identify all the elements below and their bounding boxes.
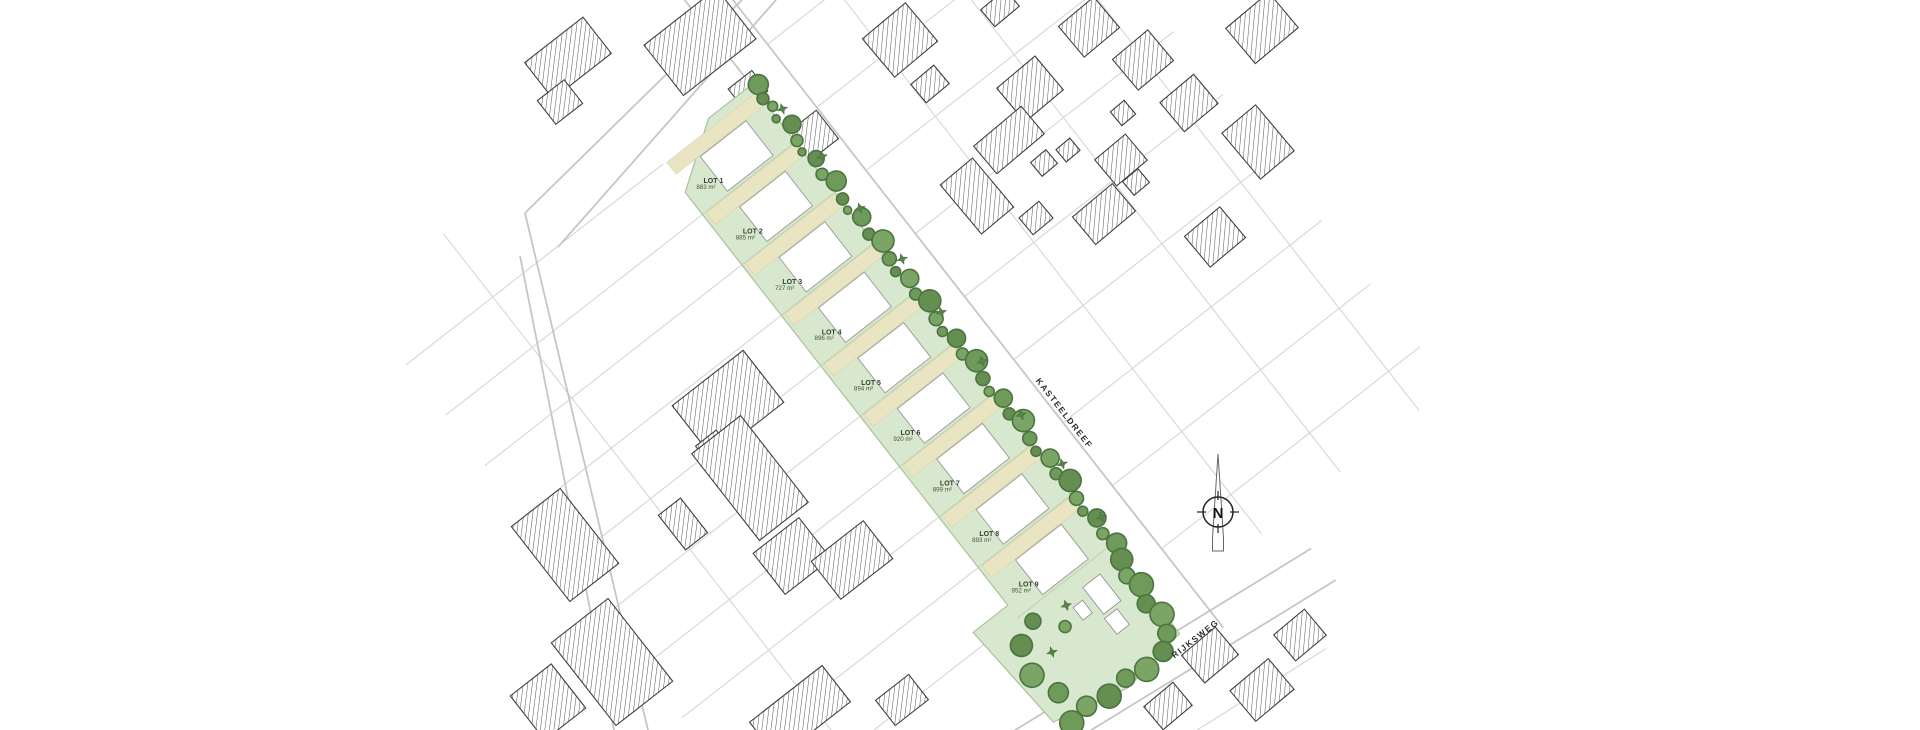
building-hatch-fill bbox=[911, 65, 949, 103]
building-hatch-fill bbox=[1073, 183, 1136, 244]
building-hatch-fill bbox=[876, 674, 929, 725]
hatched-building bbox=[811, 521, 893, 599]
north-arrow: N bbox=[1197, 454, 1239, 551]
parcel-line bbox=[1162, 347, 1420, 549]
parcel-line bbox=[446, 214, 703, 415]
site-plan-map: LOT 1883 m²LOT 2885 m²LOT 3727 m²LOT 489… bbox=[0, 0, 1920, 730]
building-hatch-fill bbox=[750, 666, 851, 730]
lot-area-label: 727 m² bbox=[775, 285, 794, 292]
hatched-building bbox=[981, 0, 1020, 27]
building-hatch-fill bbox=[1031, 150, 1058, 177]
lot-area-label: 896 m² bbox=[815, 335, 834, 342]
building-hatch-fill bbox=[1110, 100, 1135, 125]
building-hatch-fill bbox=[1226, 0, 1298, 64]
lot-area-label: 893 m² bbox=[972, 537, 991, 544]
north-label: N bbox=[1213, 505, 1224, 522]
hatched-building bbox=[1144, 682, 1192, 729]
lot-area-label: 952 m² bbox=[1012, 587, 1031, 594]
hatched-building bbox=[911, 65, 949, 103]
building-hatch-fill bbox=[811, 521, 893, 599]
street-label-main: KASTEELDREEF bbox=[1034, 376, 1095, 450]
building-hatch-fill bbox=[1144, 682, 1192, 729]
building-hatch-fill bbox=[1059, 0, 1120, 57]
hatched-building bbox=[658, 498, 707, 550]
lot-area-label: 885 m² bbox=[736, 234, 755, 241]
lot-area-label: 920 m² bbox=[893, 436, 912, 443]
bush-icon bbox=[895, 252, 909, 266]
building-hatch-fill bbox=[1160, 74, 1218, 131]
building-hatch-fill bbox=[1056, 138, 1080, 162]
hatched-building bbox=[750, 666, 851, 730]
building-hatch-fill bbox=[510, 664, 585, 730]
hatched-building bbox=[511, 488, 618, 601]
hatched-building bbox=[1185, 207, 1246, 267]
building-hatch-fill bbox=[997, 56, 1064, 122]
hatched-building bbox=[1031, 150, 1058, 177]
hatched-building bbox=[510, 664, 585, 730]
lot-area-label: 899 m² bbox=[933, 486, 952, 493]
north-needle-icon bbox=[1213, 454, 1224, 551]
hatched-building bbox=[876, 674, 929, 725]
building-hatch-fill bbox=[511, 488, 618, 601]
lot-area-label: 894 m² bbox=[854, 386, 873, 393]
hatched-building bbox=[1226, 0, 1298, 64]
parcel-line bbox=[406, 164, 663, 365]
building-hatch-fill bbox=[658, 498, 707, 550]
hatched-building bbox=[1160, 74, 1218, 131]
hatched-building bbox=[1056, 138, 1080, 162]
hatched-building bbox=[1222, 105, 1294, 179]
lot-area-label: 883 m² bbox=[696, 184, 715, 191]
building-hatch-fill bbox=[1222, 105, 1294, 179]
building-hatch-fill bbox=[862, 3, 937, 77]
parcel-line bbox=[1063, 221, 1321, 423]
hatched-building bbox=[1073, 183, 1136, 244]
site-plan-canvas: LOT 1883 m²LOT 2885 m²LOT 3727 m²LOT 489… bbox=[0, 0, 1920, 730]
parcel-line bbox=[1112, 284, 1370, 486]
building-hatch-fill bbox=[1230, 659, 1294, 722]
hatched-building bbox=[862, 3, 937, 77]
hatched-building bbox=[1059, 0, 1120, 57]
building-hatch-fill bbox=[1185, 207, 1246, 267]
hatched-building bbox=[997, 56, 1064, 122]
hatched-building bbox=[1230, 659, 1294, 722]
hatched-building bbox=[1110, 100, 1135, 125]
